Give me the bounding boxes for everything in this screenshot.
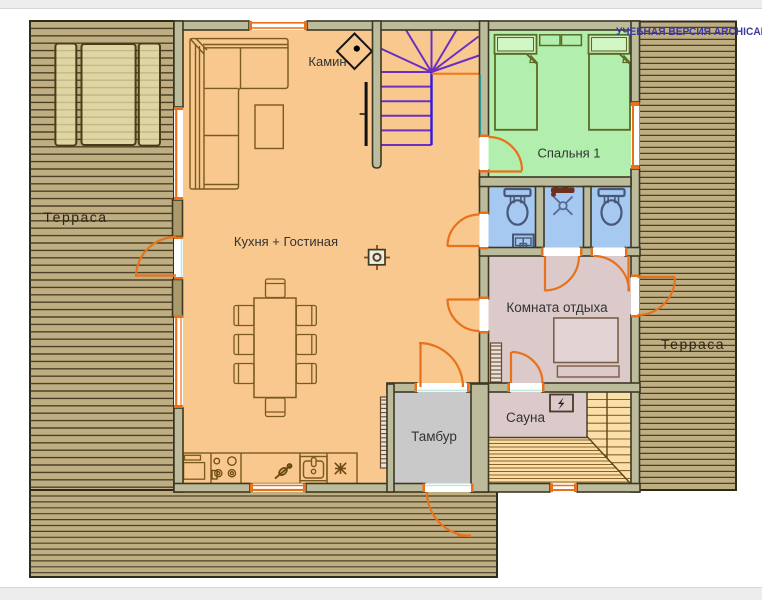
- svg-text:УЧЕБНАЯ ВЕРСИЯ ARCHICAD: УЧЕБНАЯ ВЕРСИЯ ARCHICAD: [616, 26, 762, 38]
- svg-text:Спальня 1: Спальня 1: [537, 146, 600, 161]
- svg-text:Сауна: Сауна: [506, 410, 545, 425]
- svg-text:Терраса: Терраса: [43, 209, 107, 225]
- svg-text:Терраса: Терраса: [661, 336, 725, 352]
- svg-text:Камин: Камин: [308, 54, 346, 69]
- svg-text:Тамбур: Тамбур: [411, 429, 457, 444]
- svg-text:Кухня + Гостиная: Кухня + Гостиная: [234, 234, 338, 249]
- svg-text:Комната отдыха: Комната отдыха: [506, 300, 608, 315]
